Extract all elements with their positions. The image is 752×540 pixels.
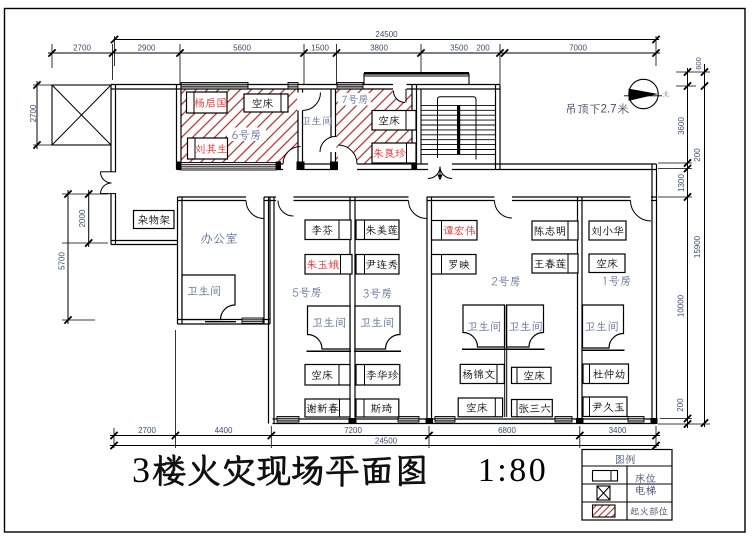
svg-text:2900: 2900 bbox=[138, 44, 156, 53]
svg-text:2000: 2000 bbox=[78, 209, 87, 227]
svg-text:24500: 24500 bbox=[375, 437, 398, 446]
svg-text:3600: 3600 bbox=[677, 117, 686, 135]
svg-text:6800: 6800 bbox=[498, 426, 516, 435]
svg-text:15900: 15900 bbox=[693, 235, 702, 258]
svg-text:1500: 1500 bbox=[311, 44, 329, 53]
svg-text:5600: 5600 bbox=[233, 44, 251, 53]
svg-text:200: 200 bbox=[476, 44, 490, 53]
svg-text:200: 200 bbox=[676, 398, 685, 412]
svg-text:200: 200 bbox=[693, 148, 702, 162]
svg-text:24500: 24500 bbox=[375, 30, 398, 39]
svg-text:1:80: 1:80 bbox=[478, 452, 548, 489]
svg-text:10000: 10000 bbox=[677, 294, 686, 317]
svg-text:2700: 2700 bbox=[29, 104, 38, 122]
svg-text:3400: 3400 bbox=[609, 426, 627, 435]
svg-text:2700: 2700 bbox=[138, 426, 156, 435]
svg-text:1300: 1300 bbox=[677, 174, 686, 192]
svg-text:7200: 7200 bbox=[344, 426, 362, 435]
svg-text:600: 600 bbox=[694, 57, 703, 70]
svg-text:3800: 3800 bbox=[370, 44, 388, 53]
svg-text:3500: 3500 bbox=[450, 44, 468, 53]
svg-text:2.7: 2.7 bbox=[601, 104, 617, 116]
svg-text:2700: 2700 bbox=[73, 44, 91, 53]
svg-text:4400: 4400 bbox=[215, 426, 233, 435]
svg-text:7000: 7000 bbox=[569, 44, 587, 53]
svg-text:5700: 5700 bbox=[58, 252, 67, 270]
svg-text:3: 3 bbox=[132, 450, 150, 490]
